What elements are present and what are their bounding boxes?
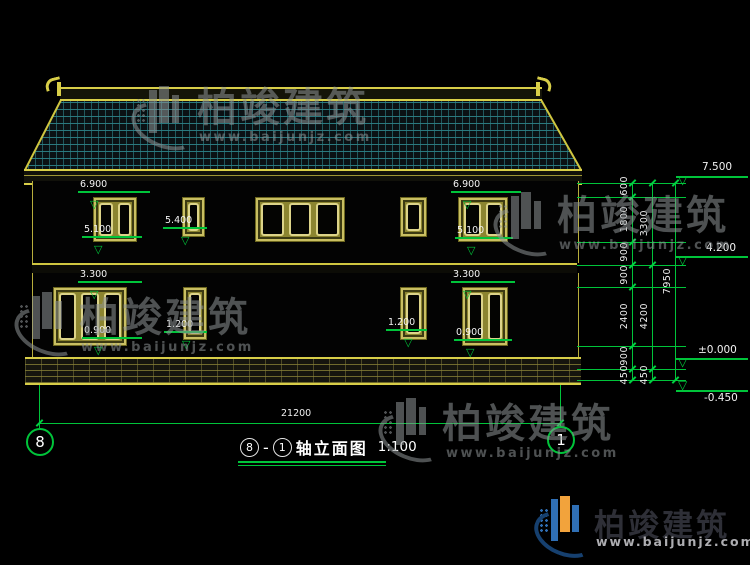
- elevation-value: 0.900: [456, 328, 512, 338]
- company-logo: 柏竣建筑 www.baijunjz.com: [536, 496, 746, 558]
- level-triangle-icon: ▽: [404, 336, 412, 349]
- watermark-brand: 柏竣建筑: [442, 402, 614, 446]
- elevation-mark: 5.100 ▽: [82, 225, 142, 238]
- elevation-value: 5.100: [84, 225, 142, 235]
- elevation-value: 6.900: [453, 180, 521, 190]
- elevation-mark: 5.400 ▽: [163, 216, 207, 229]
- elevation-mark: 6.900 ▽: [78, 180, 150, 193]
- elevation-mark: 0.900 ▽: [454, 328, 512, 341]
- level-triangle-icon: ▽: [90, 198, 98, 211]
- axis-bubble-8: 8: [26, 428, 54, 456]
- watermark: 柏竣建筑 www.baijunjz.com: [495, 192, 750, 254]
- title-separator: -: [263, 438, 269, 457]
- level-value: -0.450: [704, 392, 738, 404]
- overall-width-value: 21200: [281, 409, 311, 419]
- watermark-url: www.baijunjz.com: [446, 446, 619, 461]
- level-value: ±0.000: [698, 344, 737, 356]
- level-triangle-icon: ▽: [181, 234, 189, 247]
- window-2f-center: [255, 197, 345, 242]
- watermark-url: www.baijunjz.com: [199, 130, 372, 145]
- watermark: 柏竣建筑 www.baijunjz.com: [380, 398, 625, 460]
- elevation-mark: 3.300 ▽: [78, 270, 142, 283]
- elevation-value: 3.300: [80, 270, 142, 280]
- ridge-ornament-right-icon: [536, 78, 552, 96]
- dim-value: 4200: [639, 303, 650, 329]
- logo-url: www.baijunjz.com: [596, 534, 750, 549]
- elevation-value: 3.300: [453, 270, 515, 280]
- baijun-logo-icon: [380, 398, 436, 458]
- baijun-logo-icon: [536, 496, 588, 554]
- window-pane: [316, 203, 339, 236]
- title-underline: [238, 465, 386, 466]
- dim-value: 450: [619, 365, 630, 385]
- elevation-value: 6.900: [80, 180, 150, 190]
- watermark: 柏竣建筑 www.baijunjz.com: [16, 292, 261, 354]
- baijun-logo-icon: [133, 86, 189, 146]
- window-pane: [289, 203, 312, 236]
- dim-value: 7950: [662, 268, 673, 294]
- watermark: 柏竣建筑 www.baijunjz.com: [133, 86, 373, 148]
- title-underline: [238, 461, 386, 463]
- level-triangle-icon: ▽: [467, 244, 475, 257]
- watermark-url: www.baijunjz.com: [81, 340, 254, 355]
- ridge-ornament-left-icon: [45, 78, 61, 96]
- elevation-drawing-canvas: 6.900 ▽ 5.100 ▽ 5.400 ▽ 6.900 ▽ 5.100 ▽ …: [0, 0, 750, 565]
- level-triangle-icon: ▽: [463, 198, 471, 211]
- title-axis-circle-8: 8: [240, 438, 259, 457]
- title-axis-circle-1: 1: [273, 438, 292, 457]
- elevation-value: 1.200: [388, 318, 427, 328]
- watermark-url: www.baijunjz.com: [559, 238, 732, 253]
- elevation-mark: 6.900 ▽: [451, 180, 521, 193]
- level-triangle-icon: ▽: [678, 175, 687, 185]
- baijun-logo-icon: [16, 292, 72, 352]
- level-triangle-icon: ▽: [678, 357, 687, 367]
- window-2f-small-right: [400, 197, 427, 237]
- baijun-logo-icon: [495, 192, 551, 252]
- watermark-brand: 柏竣建筑: [557, 194, 729, 238]
- dim-value: 900: [619, 265, 630, 285]
- elevation-mark: 1.200 ▽: [386, 318, 427, 331]
- level-triangle-icon: ▽: [94, 243, 102, 256]
- dim-value: 2400: [619, 303, 630, 329]
- level-value: 7.500: [702, 161, 732, 173]
- window-pane: [261, 203, 284, 236]
- watermark-brand: 柏竣建筑: [79, 296, 251, 340]
- level-triangle-icon: ▽: [463, 288, 471, 301]
- title-text: 轴立面图: [296, 435, 368, 459]
- axis-number: 8: [35, 433, 45, 451]
- brick-plinth: [25, 357, 581, 385]
- level-triangle-icon: ▽: [678, 380, 687, 390]
- elevation-mark: 3.300 ▽: [451, 270, 515, 283]
- level-triangle-icon: ▽: [466, 346, 474, 359]
- elevation-value: 5.400: [165, 216, 207, 226]
- window-pane: [406, 203, 421, 231]
- dim-value: 900: [619, 346, 630, 366]
- watermark-brand: 柏竣建筑: [197, 86, 369, 130]
- window-1f-small-right: [400, 287, 427, 340]
- dim-value: 450: [639, 365, 650, 385]
- level-triangle-icon: ▽: [678, 255, 687, 265]
